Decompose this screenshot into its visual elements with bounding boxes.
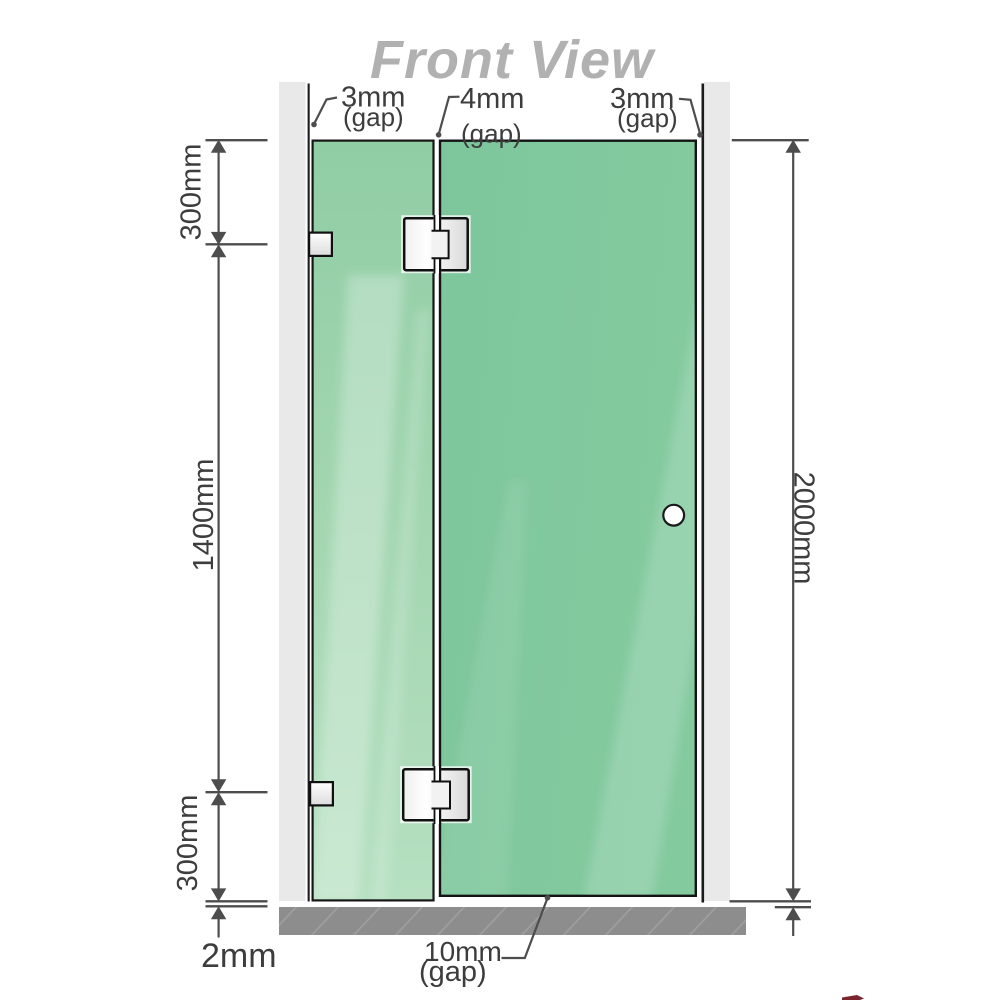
svg-text:(gap): (gap) [419,956,487,988]
svg-text:(gap): (gap) [343,102,404,132]
svg-text:Front View: Front View [370,30,656,90]
svg-text:4mm: 4mm [460,83,524,115]
svg-text:1400mm: 1400mm [188,459,220,572]
svg-text:(gap): (gap) [461,119,522,149]
svg-text:300mm: 300mm [176,144,208,241]
svg-text:300mm: 300mm [172,795,204,892]
svg-text:(gap): (gap) [617,103,678,133]
svg-text:2000mm: 2000mm [788,472,820,585]
svg-text:2mm: 2mm [201,937,277,975]
